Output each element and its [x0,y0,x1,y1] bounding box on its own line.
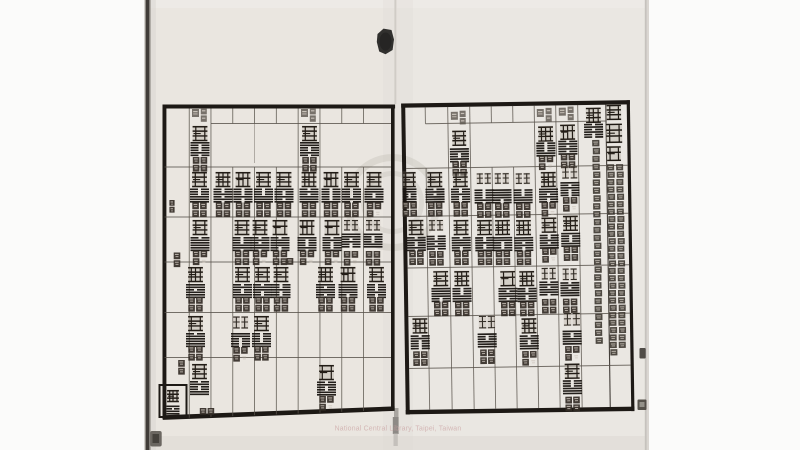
svg-text:National Central Library, Taip: National Central Library, Taipei, Taiwan [335,426,462,433]
